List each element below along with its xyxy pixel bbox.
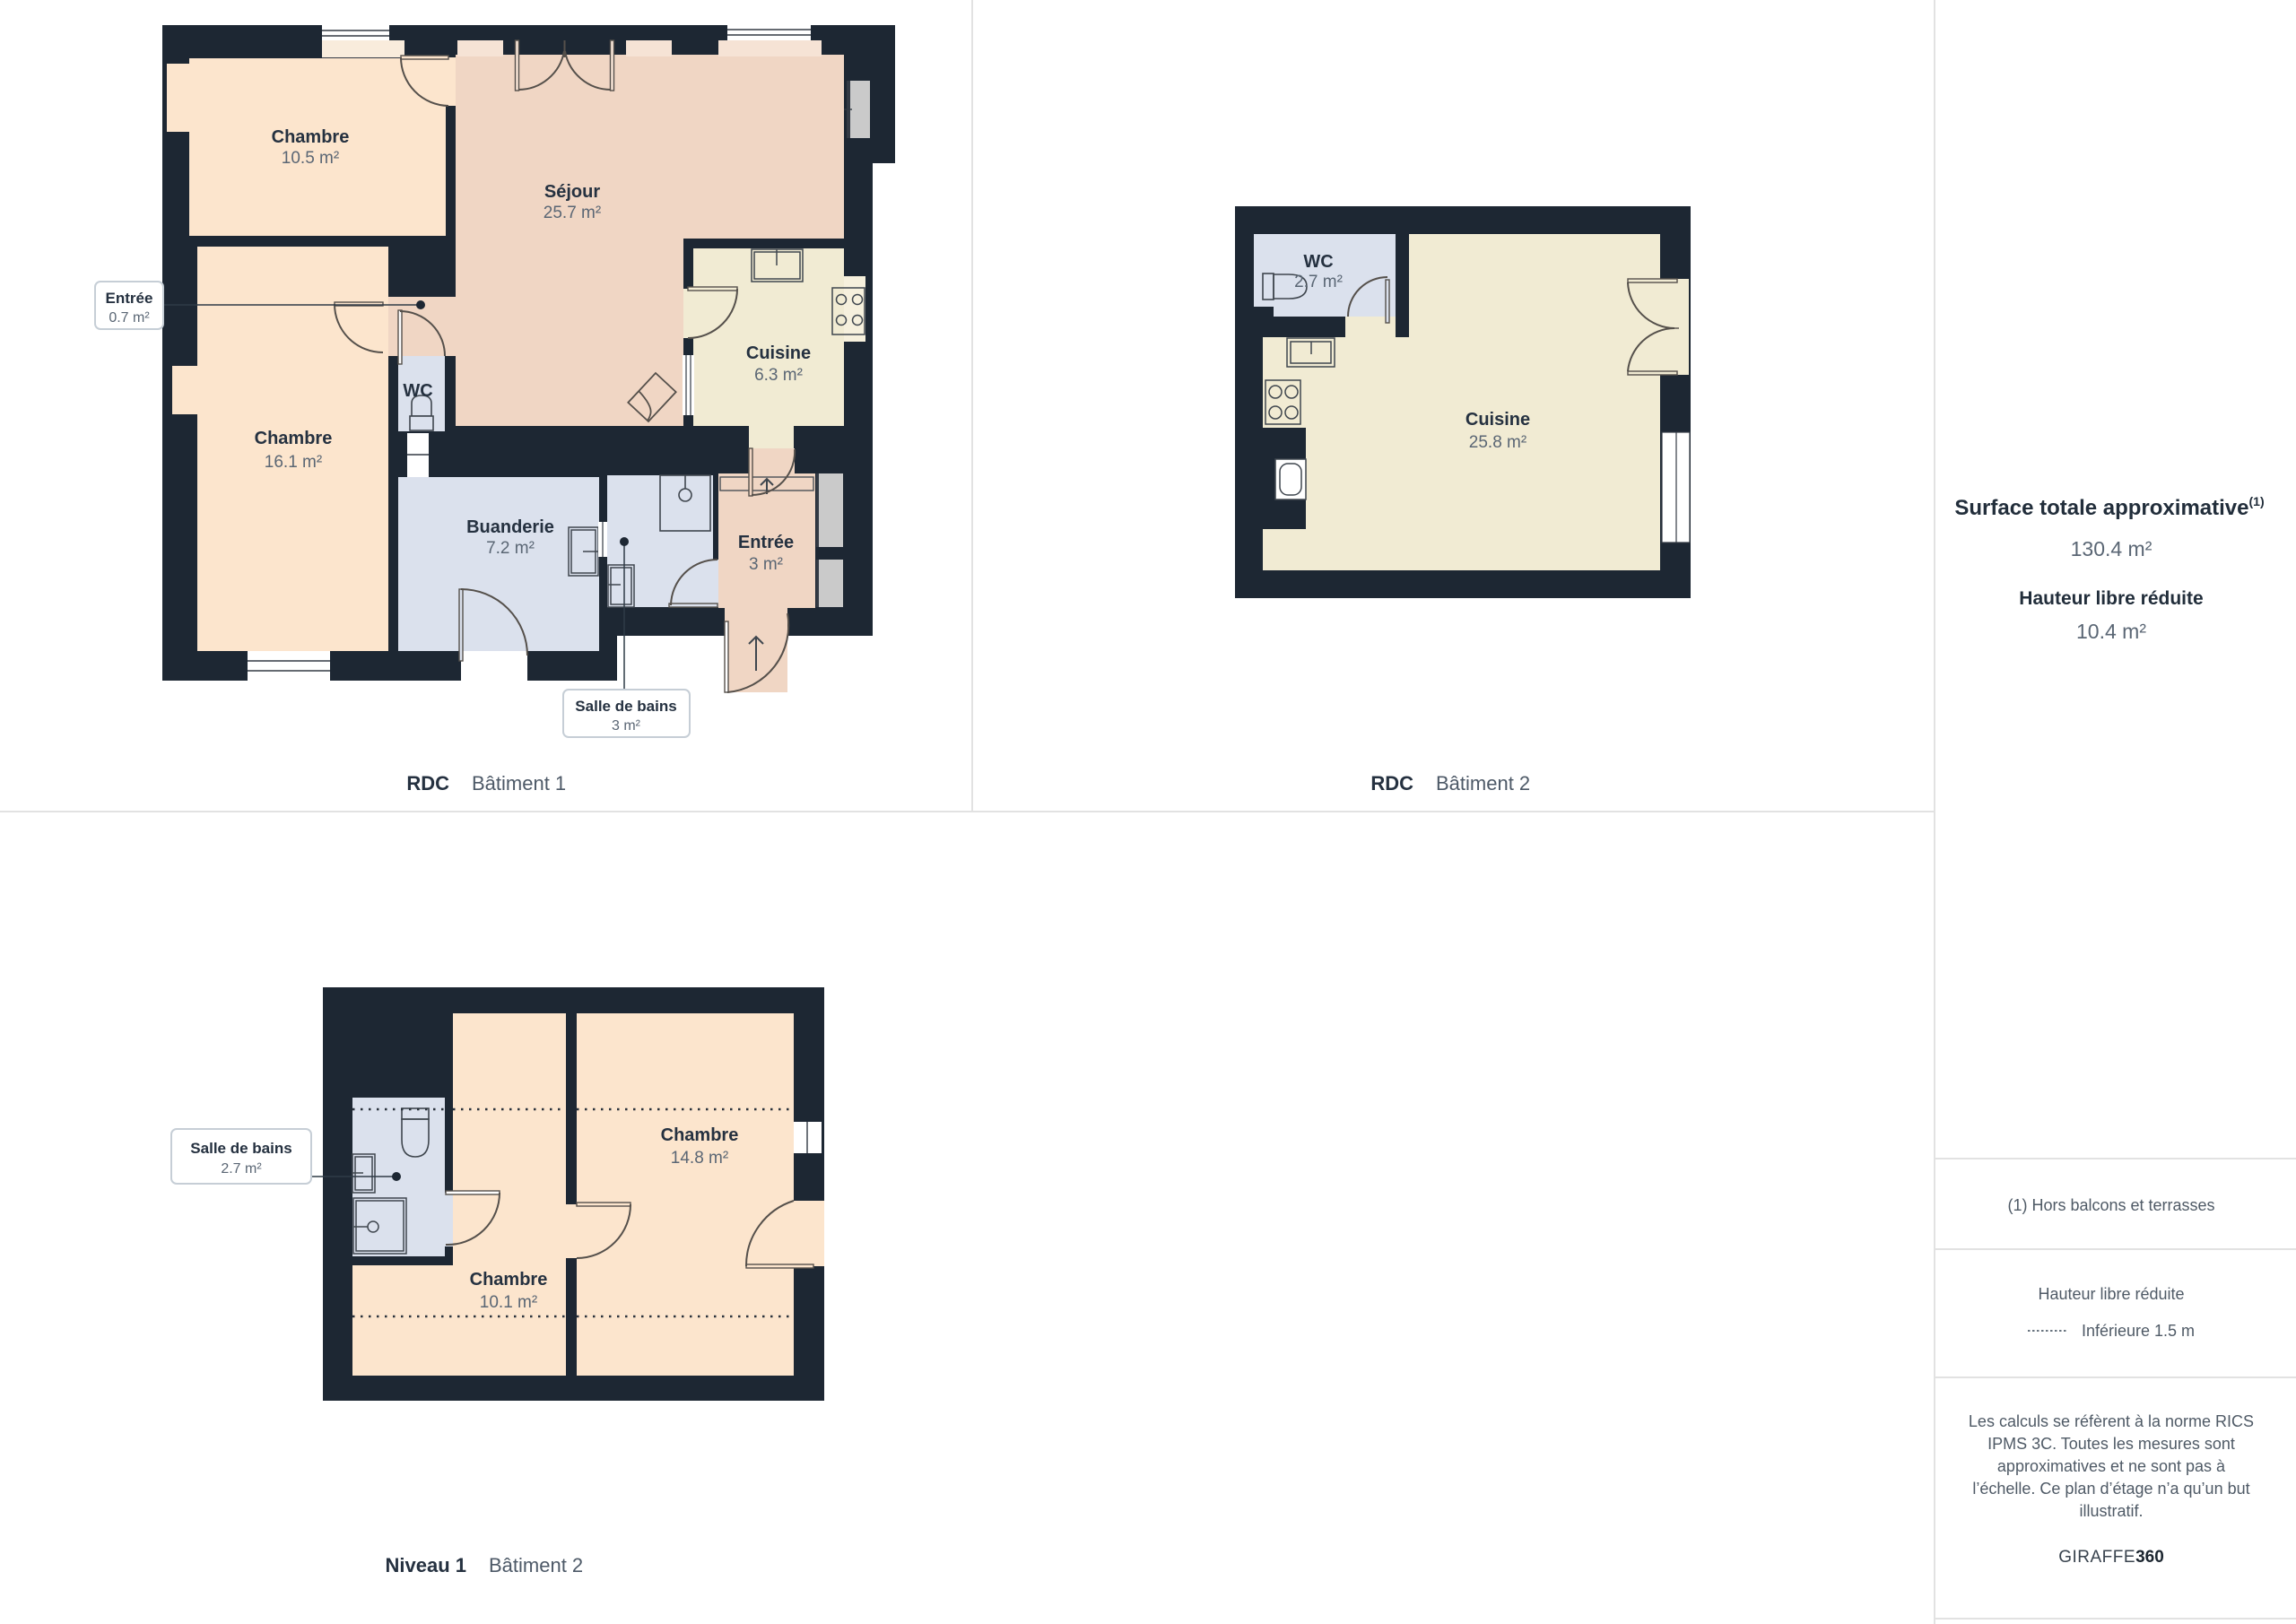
- svg-text:25.7 m²: 25.7 m²: [544, 204, 601, 222]
- svg-text:Chambre: Chambre: [272, 127, 350, 147]
- svg-text:Entrée: Entrée: [738, 533, 794, 552]
- svg-text:RDC: RDC: [406, 772, 449, 795]
- svg-text:approximatives et ne sont pas: approximatives et ne sont pas à: [1997, 1457, 2226, 1475]
- svg-text:10.5 m²: 10.5 m²: [282, 149, 339, 168]
- svg-text:10.1 m²: 10.1 m²: [480, 1293, 537, 1312]
- svg-text:Cuisine: Cuisine: [1465, 410, 1530, 430]
- svg-text:Bâtiment 2: Bâtiment 2: [1436, 772, 1530, 795]
- svg-text:Salle de bains: Salle de bains: [575, 698, 676, 715]
- svg-text:6.3 m²: 6.3 m²: [754, 366, 803, 385]
- svg-text:(1) Hors balcons et terrasses: (1) Hors balcons et terrasses: [2007, 1196, 2214, 1214]
- svg-text:2.7 m²: 2.7 m²: [221, 1161, 262, 1177]
- svg-text:Cuisine: Cuisine: [746, 343, 811, 363]
- svg-text:Chambre: Chambre: [470, 1270, 548, 1290]
- svg-text:14.8 m²: 14.8 m²: [671, 1149, 728, 1168]
- svg-text:Séjour: Séjour: [544, 182, 600, 202]
- svg-text:IPMS 3C. Toutes les mesures so: IPMS 3C. Toutes les mesures sont: [1987, 1435, 2235, 1453]
- svg-text:2.7 m²: 2.7 m²: [1294, 273, 1343, 291]
- svg-text:Entrée: Entrée: [106, 290, 153, 307]
- svg-text:WC: WC: [403, 381, 432, 401]
- svg-text:Bâtiment 2: Bâtiment 2: [489, 1554, 583, 1576]
- svg-text:Les calculs se réfèrent à la n: Les calculs se réfèrent à la norme RICS: [1969, 1412, 2254, 1430]
- svg-text:Surface totale approximative(1: Surface totale approximative(1): [1954, 494, 2264, 520]
- svg-text:Niveau 1: Niveau 1: [386, 1554, 467, 1576]
- svg-text:Bâtiment 1: Bâtiment 1: [472, 772, 566, 795]
- svg-text:130.4 m²: 130.4 m²: [2071, 537, 2152, 560]
- svg-text:7.2 m²: 7.2 m²: [486, 539, 535, 558]
- svg-text:GIRAFFE360: GIRAFFE360: [2058, 1548, 2164, 1567]
- svg-text:16.1 m²: 16.1 m²: [265, 453, 322, 472]
- svg-text:l’échelle. Ce plan d’étage n’a: l’échelle. Ce plan d’étage n’a qu’un but: [1972, 1480, 2249, 1498]
- svg-text:Hauteur libre réduite: Hauteur libre réduite: [2038, 1285, 2184, 1303]
- svg-text:Buanderie: Buanderie: [466, 517, 554, 537]
- svg-text:Inférieure 1.5 m: Inférieure 1.5 m: [2082, 1322, 2195, 1340]
- svg-text:0.7 m²: 0.7 m²: [109, 310, 150, 326]
- svg-text:Chambre: Chambre: [255, 429, 333, 448]
- svg-text:Salle de bains: Salle de bains: [190, 1140, 291, 1157]
- svg-text:illustratif.: illustratif.: [2079, 1502, 2143, 1520]
- svg-text:10.4 m²: 10.4 m²: [2076, 620, 2146, 643]
- svg-text:25.8 m²: 25.8 m²: [1469, 433, 1526, 452]
- svg-text:3 m²: 3 m²: [749, 555, 783, 574]
- svg-text:Chambre: Chambre: [661, 1125, 739, 1145]
- svg-text:WC: WC: [1303, 252, 1333, 272]
- svg-text:3 m²: 3 m²: [612, 718, 641, 734]
- svg-text:RDC: RDC: [1370, 772, 1413, 795]
- svg-text:Hauteur libre réduite: Hauteur libre réduite: [2019, 588, 2203, 609]
